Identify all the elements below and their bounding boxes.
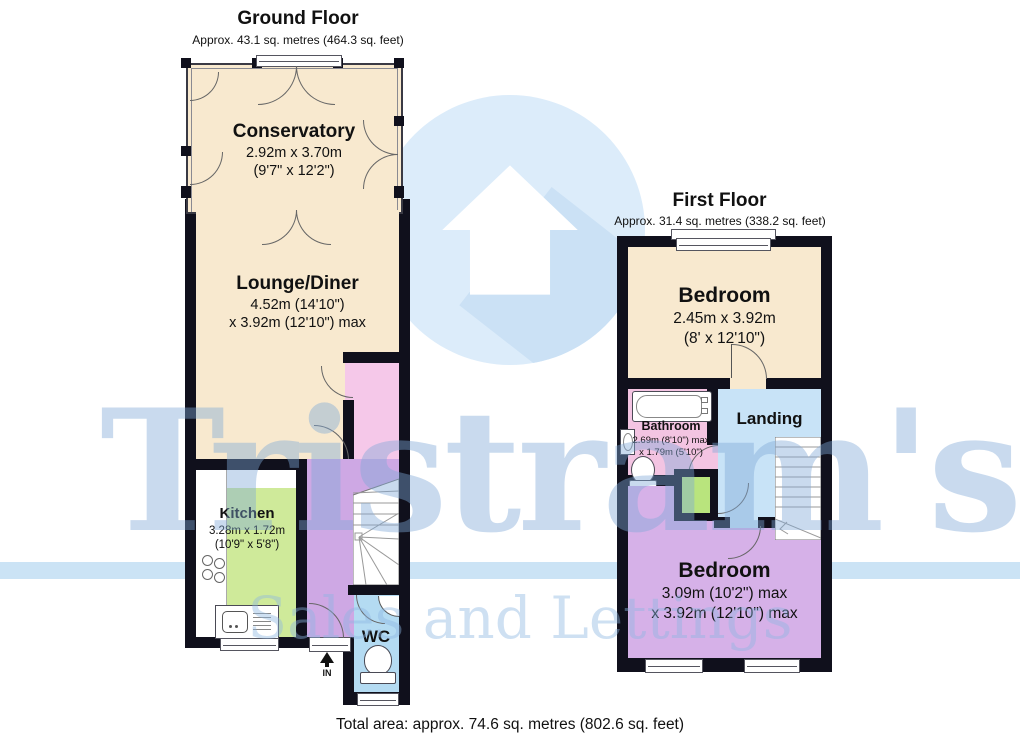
wc-toilet-bowl (364, 645, 392, 675)
cupboard (682, 477, 710, 513)
stairs-first (775, 437, 821, 540)
ground-floor-title: Ground Floor (182, 8, 414, 30)
bedroom-front-door-opening (730, 378, 766, 389)
bedroom-front-label: Bedroom 2.45m x 3.92m (8' x 12'10") (628, 283, 821, 348)
watermark-underline-bar (0, 562, 1020, 579)
kitchen-sink-unit (215, 605, 279, 639)
hob-ring-icon (202, 555, 213, 566)
lounge-conservatory-opening (262, 199, 330, 210)
first-floor-title: First Floor (612, 190, 827, 212)
entrance-in-label: IN (315, 668, 339, 679)
entrance-arrow-stem (325, 662, 329, 667)
floorplan-page: Ground Floor Approx. 43.1 sq. metres (46… (0, 0, 1020, 742)
landing-label: Landing (718, 408, 821, 429)
bedroom-front-window (676, 238, 771, 251)
brand-logo-circle (375, 95, 645, 365)
bathtub (632, 391, 712, 422)
bedroom-back-window (645, 659, 703, 673)
conservatory-label: Conservatory 2.92m x 3.70m (9'7" x 12'2"… (196, 120, 392, 180)
hob-ring-icon (214, 572, 225, 583)
entrance-threshold (309, 637, 351, 652)
wc-label: WC (353, 626, 399, 647)
bedroom-back-label: Bedroom 3.09m (10'2") max x 3.92m (12'10… (628, 558, 821, 623)
hob-ring-icon (202, 569, 213, 580)
ground-floor-subtitle: Approx. 43.1 sq. metres (464.3 sq. feet) (170, 33, 426, 47)
bedroom-back-window (744, 659, 800, 673)
sink-bowl (222, 611, 248, 633)
wc-toilet-cistern (360, 672, 396, 684)
bathroom-label: Bathroom 2.69m (8'10") max x 1.79m (5'10… (626, 419, 716, 458)
first-floor-subtitle: Approx. 31.4 sq. metres (338.2 sq. feet) (598, 214, 842, 228)
lounge-label: Lounge/Diner 4.52m (14'10") x 3.92m (12'… (196, 272, 399, 332)
total-area-text: Total area: approx. 74.6 sq. metres (802… (0, 716, 1020, 734)
hob-ring-icon (214, 558, 225, 569)
wc-window (357, 693, 399, 706)
kitchen-label: Kitchen 3.28m x 1.72m (10'9" x 5'8") (194, 505, 300, 553)
kitchen-window (220, 638, 279, 651)
stairs-ground (353, 477, 399, 585)
